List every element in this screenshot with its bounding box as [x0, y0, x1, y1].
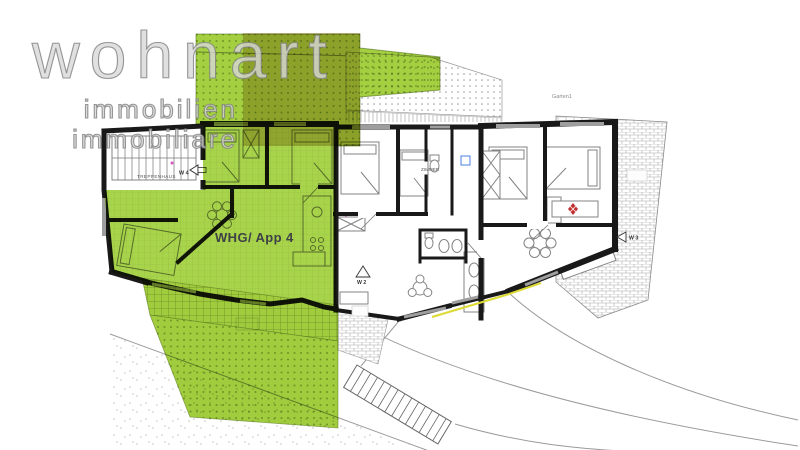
apartment-label: WHG/ App 4	[215, 230, 294, 245]
highlight-overlays	[0, 0, 800, 450]
beige-overlay	[243, 33, 360, 146]
floor-plan-page: TREPPENHAUS ZIMMER Garten1 W 4 W 2 W 3	[0, 0, 800, 450]
apartment-highlight	[104, 124, 336, 310]
